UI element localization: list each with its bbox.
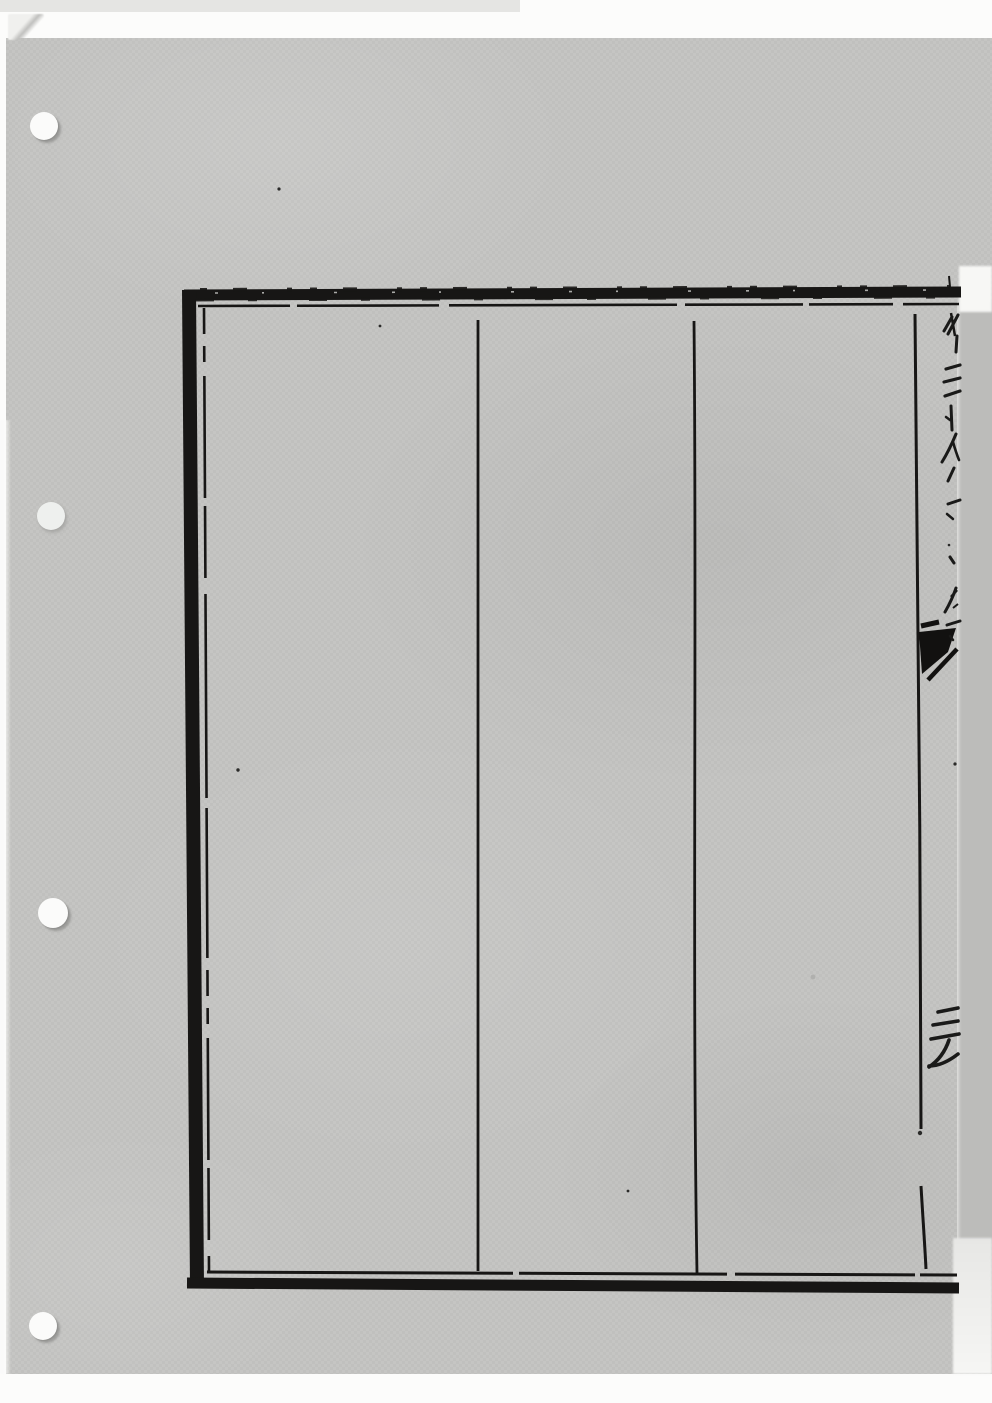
cjk-fragment	[947, 500, 960, 519]
toner-specks	[236, 187, 956, 1192]
punch-hole	[29, 1312, 57, 1340]
column-line-2	[694, 321, 697, 1273]
column-line-3-lower	[921, 1186, 926, 1269]
punch-hole	[38, 898, 68, 928]
tick-above-border	[949, 276, 950, 287]
cjk-fragment	[946, 406, 952, 430]
cjk-fragment	[929, 1008, 959, 1067]
cjk-fragment	[945, 588, 956, 612]
cjk-fragment	[942, 434, 959, 462]
cjk-fragments	[929, 315, 960, 1067]
column-line-3-upper	[915, 314, 921, 1129]
cjk-fragment	[944, 315, 958, 352]
column-line-1	[478, 320, 479, 1271]
cjk-fragment	[950, 557, 954, 563]
cjk-fragment	[948, 468, 954, 481]
inner-rule-top	[198, 304, 959, 306]
cjk-fragment	[944, 365, 960, 396]
frame-border-bottom	[187, 1283, 959, 1288]
inner-rule-left	[204, 308, 209, 1271]
punch-hole	[30, 112, 58, 140]
frame-border-top	[184, 292, 961, 295]
ink-wedge-blotch	[919, 590, 958, 680]
punch-hole	[37, 502, 65, 530]
inner-rule-bottom	[207, 1272, 957, 1275]
scanned-book-page	[0, 0, 992, 1403]
printed-frame	[0, 0, 992, 1403]
frame-border-left	[189, 290, 197, 1287]
